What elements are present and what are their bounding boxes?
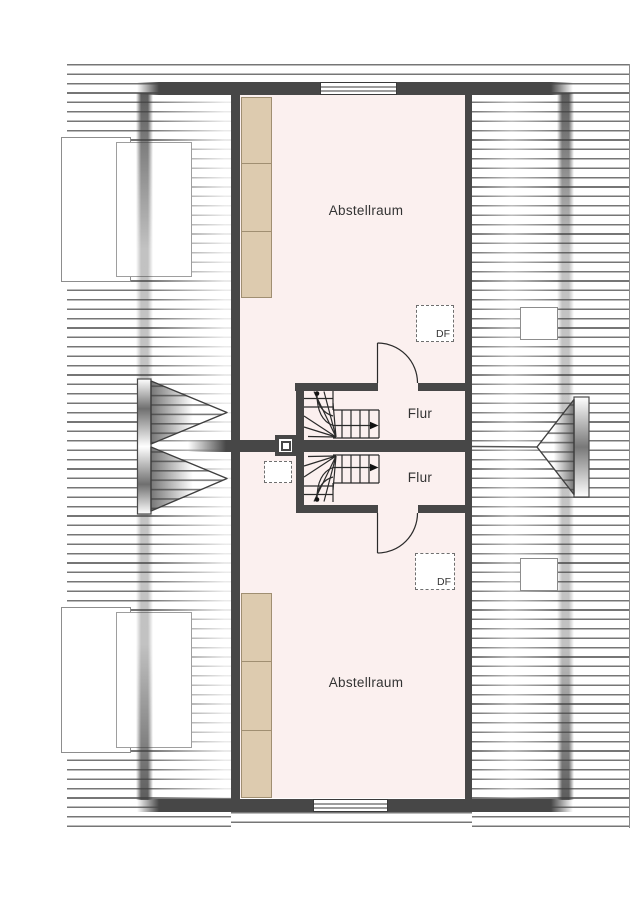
- roof-skylight-square-lower: [520, 558, 558, 591]
- knee-wall-shadow-right: [557, 93, 574, 800]
- room-label-flur-lower: Flur: [380, 470, 460, 485]
- flur-top-wall-left-segment: [295, 383, 378, 391]
- flur-top-wall-right-segment: [418, 383, 465, 391]
- cabinet-top-2: [241, 163, 272, 232]
- room-label-flur-upper: Flur: [380, 406, 460, 421]
- cabinet-top-3: [241, 231, 272, 298]
- chimney: [275, 435, 296, 456]
- room-label-abstellraum-bottom: Abstellraum: [286, 675, 446, 690]
- cabinet-bottom-2: [241, 661, 272, 731]
- chimney-inner-ring: [279, 439, 292, 452]
- roof-skylight-square-upper: [520, 307, 558, 340]
- skylight-df-top: DF: [416, 305, 454, 342]
- dormer-window-top-left-inner: [116, 142, 192, 277]
- df-label-bottom: DF: [437, 576, 451, 588]
- window-bottom: [313, 799, 388, 812]
- knee-wall-shadow-left: [136, 93, 153, 800]
- dormer-window-bottom-left-inner: [116, 612, 192, 748]
- room-label-abstellraum-top: Abstellraum: [286, 203, 446, 218]
- hatch-fade-right-strip: [473, 95, 559, 798]
- stairwell-left-wall: [296, 383, 304, 513]
- roof-edge-right: [629, 64, 630, 828]
- chimney-flue: [281, 441, 291, 451]
- window-top: [320, 82, 397, 95]
- roof-hatch-bottom-band: [231, 812, 472, 828]
- flur-bottom-wall-right-segment: [418, 505, 465, 513]
- df-label-top: DF: [436, 328, 450, 340]
- roof-hatch-top-band: [231, 64, 472, 82]
- party-wall: [188, 440, 472, 452]
- cabinet-bottom-1: [241, 593, 272, 662]
- skylight-df-bottom: DF: [415, 553, 455, 590]
- cabinet-top-1: [241, 97, 272, 164]
- cabinet-bottom-3: [241, 730, 272, 798]
- floor-plan: DF DF: [0, 0, 636, 900]
- dashed-marker-chimney: [264, 461, 292, 483]
- flur-bottom-wall-left-segment: [296, 505, 378, 513]
